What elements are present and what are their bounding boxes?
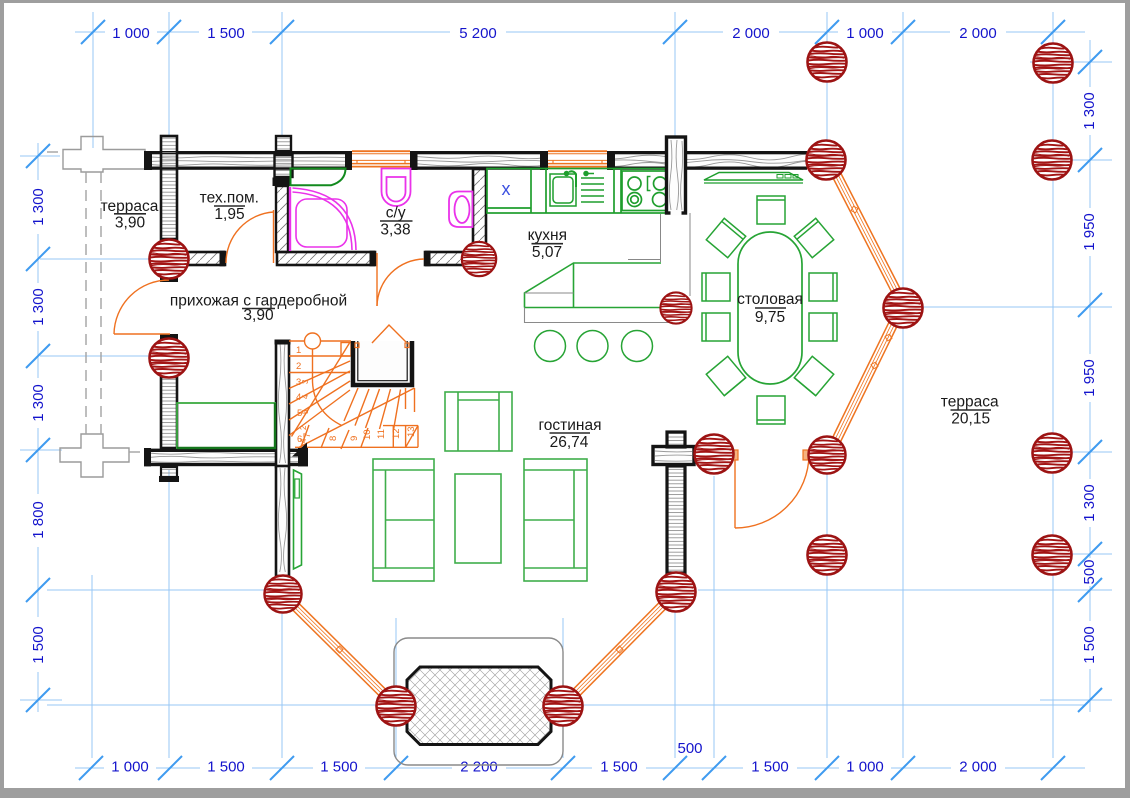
- svg-text:1 500: 1 500: [207, 759, 245, 776]
- svg-text:1 000: 1 000: [846, 25, 884, 42]
- svg-text:1: 1: [296, 345, 301, 356]
- svg-text:1 000: 1 000: [111, 759, 149, 776]
- svg-text:5: 5: [301, 409, 310, 414]
- svg-text:1 300: 1 300: [30, 384, 47, 422]
- svg-text:12: 12: [391, 428, 402, 439]
- svg-text:тех.пом.: тех.пом.: [200, 190, 259, 207]
- svg-text:4: 4: [299, 438, 308, 443]
- svg-text:1 500: 1 500: [1081, 626, 1098, 664]
- svg-text:1 800: 1 800: [30, 501, 47, 539]
- svg-text:1 000: 1 000: [846, 759, 884, 776]
- svg-text:с/у: с/у: [386, 205, 406, 222]
- svg-text:26,74: 26,74: [550, 434, 589, 451]
- svg-text:1 950: 1 950: [1081, 359, 1098, 397]
- svg-text:1 500: 1 500: [320, 759, 358, 776]
- svg-text:гостиная: гостиная: [538, 417, 601, 434]
- svg-text:2 000: 2 000: [959, 25, 997, 42]
- svg-text:1 950: 1 950: [1081, 213, 1098, 251]
- svg-text:3,90: 3,90: [115, 215, 146, 232]
- svg-text:5 200: 5 200: [459, 25, 497, 42]
- svg-text:9,75: 9,75: [755, 309, 785, 326]
- svg-text:3,38: 3,38: [380, 222, 410, 239]
- svg-text:x: x: [502, 179, 511, 199]
- svg-text:3,90: 3,90: [243, 307, 274, 324]
- svg-text:2 000: 2 000: [959, 759, 997, 776]
- svg-text:7: 7: [302, 433, 313, 438]
- svg-text:столовая: столовая: [737, 291, 803, 308]
- svg-text:1 300: 1 300: [30, 188, 47, 226]
- svg-text:1 500: 1 500: [30, 626, 47, 664]
- svg-text:10: 10: [362, 429, 373, 440]
- svg-text:8: 8: [328, 436, 339, 441]
- svg-text:500: 500: [1081, 559, 1098, 584]
- svg-text:20,15: 20,15: [951, 411, 990, 428]
- svg-text:1 300: 1 300: [1081, 92, 1098, 130]
- svg-text:2 000: 2 000: [732, 25, 770, 42]
- svg-text:1 500: 1 500: [751, 759, 789, 776]
- svg-text:1 300: 1 300: [1081, 484, 1098, 522]
- svg-text:кухня: кухня: [528, 227, 567, 244]
- svg-text:500: 500: [677, 740, 702, 757]
- svg-text:4: 4: [301, 394, 310, 399]
- svg-text:1 500: 1 500: [207, 25, 245, 42]
- svg-text:2 200: 2 200: [460, 759, 498, 776]
- svg-text:1,95: 1,95: [214, 206, 244, 223]
- svg-text:1 000: 1 000: [112, 25, 150, 42]
- svg-text:терраса: терраса: [101, 198, 159, 215]
- svg-text:3: 3: [301, 379, 310, 384]
- svg-text:9: 9: [349, 436, 360, 441]
- svg-text:11: 11: [376, 429, 387, 439]
- svg-text:1 500: 1 500: [600, 759, 638, 776]
- svg-text:2: 2: [299, 425, 308, 430]
- svg-text:13: 13: [406, 426, 417, 437]
- svg-text:1 300: 1 300: [30, 288, 47, 326]
- svg-text:2: 2: [296, 361, 301, 372]
- svg-text:5,07: 5,07: [532, 244, 562, 261]
- svg-text:терраса: терраса: [941, 394, 999, 411]
